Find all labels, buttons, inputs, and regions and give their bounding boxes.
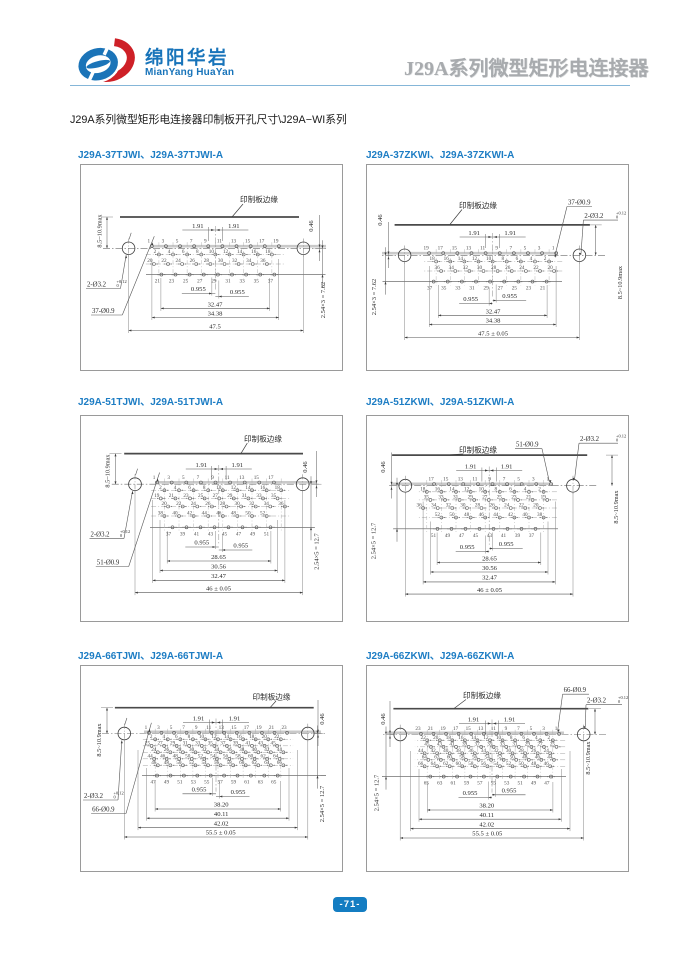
svg-text:24: 24 [151, 747, 157, 753]
svg-text:64: 64 [422, 754, 428, 760]
svg-text:2-Ø3.2: 2-Ø3.2 [584, 213, 604, 220]
svg-text:36: 36 [435, 265, 441, 271]
svg-text:32.47: 32.47 [482, 575, 498, 582]
svg-text:31: 31 [242, 493, 248, 499]
svg-text:27: 27 [482, 494, 488, 500]
svg-text:27: 27 [537, 741, 543, 747]
svg-text:49: 49 [250, 531, 256, 537]
svg-text:44: 44 [277, 747, 283, 753]
svg-text:57: 57 [218, 779, 224, 785]
svg-text:29: 29 [468, 494, 474, 500]
svg-text:35: 35 [441, 286, 447, 292]
svg-text:23: 23 [281, 725, 287, 731]
svg-text:5: 5 [170, 725, 173, 731]
svg-text:56: 56 [472, 754, 478, 760]
svg-text:32: 32 [446, 503, 452, 509]
svg-text:6: 6 [188, 485, 191, 491]
svg-text:5: 5 [176, 238, 179, 244]
svg-text:4: 4 [524, 486, 527, 492]
svg-text:21: 21 [526, 494, 532, 500]
svg-text:19: 19 [154, 493, 160, 499]
svg-text:42: 42 [431, 748, 437, 754]
svg-text:44: 44 [202, 511, 208, 517]
svg-text:37-Ø0.9: 37-Ø0.9 [92, 308, 115, 315]
svg-text:2.54×3 = 7.62: 2.54×3 = 7.62 [371, 279, 378, 316]
svg-text:66-Ø0.9: 66-Ø0.9 [564, 687, 587, 694]
svg-text:2-Ø3.2: 2-Ø3.2 [91, 531, 111, 538]
svg-text:印制板边缘: 印制板边缘 [459, 445, 497, 455]
svg-text:11: 11 [480, 245, 485, 251]
svg-text:24: 24 [176, 258, 182, 264]
svg-text:1.91: 1.91 [468, 230, 480, 237]
svg-text:16: 16 [435, 486, 441, 492]
svg-text:30: 30 [477, 265, 483, 271]
svg-text:28.65: 28.65 [482, 555, 498, 562]
svg-text:20: 20 [533, 503, 539, 509]
svg-text:52: 52 [189, 760, 195, 766]
svg-text:34: 34 [431, 503, 437, 509]
svg-text:53: 53 [504, 780, 510, 786]
svg-text:52: 52 [260, 511, 266, 517]
svg-text:24: 24 [504, 503, 510, 509]
svg-text:42: 42 [508, 512, 514, 518]
svg-text:52: 52 [506, 761, 512, 767]
svg-text:19: 19 [541, 494, 547, 500]
svg-text:8: 8 [495, 486, 498, 492]
svg-text:36: 36 [417, 503, 423, 509]
svg-text:43: 43 [258, 740, 264, 746]
svg-text:17: 17 [429, 476, 435, 482]
svg-text:45: 45 [222, 531, 228, 537]
svg-text:62: 62 [434, 754, 440, 760]
svg-text:18: 18 [275, 485, 281, 491]
svg-text:51-Ø0.9: 51-Ø0.9 [97, 560, 120, 567]
svg-text:21: 21 [269, 725, 275, 731]
svg-text:47: 47 [544, 780, 550, 786]
svg-text:0.46: 0.46 [319, 713, 326, 725]
svg-text:25: 25 [183, 279, 189, 285]
svg-text:28: 28 [176, 747, 182, 753]
svg-text:61: 61 [451, 780, 457, 786]
svg-text:26: 26 [490, 503, 496, 509]
svg-text:4: 4 [530, 256, 533, 262]
svg-text:20: 20 [162, 501, 168, 507]
svg-text:15: 15 [245, 238, 251, 244]
svg-text:58: 58 [459, 754, 465, 760]
svg-text:14: 14 [245, 485, 251, 491]
svg-text:2-Ø3.2: 2-Ø3.2 [580, 436, 600, 443]
svg-text:53: 53 [191, 779, 197, 785]
svg-text:43: 43 [208, 531, 214, 537]
svg-text:40: 40 [252, 747, 258, 753]
svg-text:37: 37 [220, 740, 226, 746]
svg-text:51: 51 [431, 533, 437, 539]
svg-text:5: 5 [517, 476, 520, 482]
svg-text:50: 50 [449, 512, 455, 518]
svg-text:17: 17 [438, 245, 444, 251]
svg-text:1.91: 1.91 [465, 463, 477, 470]
svg-text:1.91: 1.91 [228, 223, 240, 230]
svg-text:0.955: 0.955 [463, 790, 479, 797]
svg-text:22: 22 [176, 501, 182, 507]
svg-text:13: 13 [466, 245, 472, 251]
svg-text:34: 34 [449, 265, 455, 271]
svg-text:1: 1 [148, 238, 151, 244]
svg-text:29: 29 [170, 740, 176, 746]
svg-text:34: 34 [264, 501, 270, 507]
svg-text:28: 28 [491, 265, 497, 271]
svg-text:5: 5 [530, 726, 533, 732]
svg-text:3: 3 [157, 725, 160, 731]
svg-text:0.46: 0.46 [377, 214, 384, 226]
svg-text:0.955: 0.955 [463, 296, 479, 303]
svg-text:27: 27 [498, 286, 504, 292]
svg-text:18: 18 [446, 735, 452, 741]
svg-text:23: 23 [183, 493, 189, 499]
svg-text:46 ± 0.05: 46 ± 0.05 [477, 587, 503, 594]
svg-text:54: 54 [493, 761, 499, 767]
svg-text:14: 14 [224, 734, 230, 740]
svg-text:2.54×5 = 12.7: 2.54×5 = 12.7 [374, 774, 381, 811]
svg-text:24: 24 [191, 501, 197, 507]
svg-text:23: 23 [169, 279, 175, 285]
svg-text:2.54×3 = 7.62: 2.54×3 = 7.62 [320, 282, 327, 319]
svg-text:3: 3 [532, 476, 535, 482]
svg-text:28.65: 28.65 [211, 554, 227, 561]
svg-text:7: 7 [182, 725, 185, 731]
svg-text:7: 7 [503, 476, 506, 482]
svg-text:6: 6 [516, 256, 519, 262]
svg-text:19: 19 [440, 726, 446, 732]
svg-text:56: 56 [481, 761, 487, 767]
svg-text:59: 59 [231, 779, 237, 785]
svg-text:1: 1 [145, 725, 148, 731]
svg-text:35: 35 [208, 740, 214, 746]
svg-text:33: 33 [256, 493, 262, 499]
svg-text:9: 9 [488, 476, 491, 482]
svg-text:15: 15 [466, 726, 472, 732]
svg-text:31: 31 [469, 286, 475, 292]
svg-text:2.54×5 = 12.7: 2.54×5 = 12.7 [319, 785, 326, 822]
svg-text:15: 15 [231, 725, 237, 731]
svg-text:1.91: 1.91 [468, 716, 480, 723]
svg-text:48: 48 [522, 754, 528, 760]
svg-text:7: 7 [197, 475, 200, 481]
svg-text:56: 56 [223, 753, 229, 759]
svg-text:26: 26 [505, 265, 511, 271]
svg-text:10: 10 [199, 734, 205, 740]
svg-text:1: 1 [552, 245, 555, 251]
svg-text:54: 54 [201, 760, 207, 766]
svg-text:24: 24 [544, 748, 550, 754]
svg-text:55: 55 [204, 779, 210, 785]
svg-text:26: 26 [190, 258, 196, 264]
svg-text:66-Ø0.9: 66-Ø0.9 [92, 807, 115, 814]
svg-text:29: 29 [227, 493, 233, 499]
svg-text:21: 21 [169, 493, 175, 499]
svg-text:0.955: 0.955 [231, 789, 247, 796]
svg-text:36: 36 [468, 748, 474, 754]
svg-text:41: 41 [501, 533, 507, 539]
svg-text:16: 16 [458, 735, 464, 741]
svg-text:2: 2 [538, 486, 541, 492]
svg-text:印制板边缘: 印制板边缘 [253, 692, 291, 702]
svg-text:37: 37 [475, 741, 481, 747]
svg-text:35: 35 [424, 494, 430, 500]
svg-text:30.56: 30.56 [482, 565, 498, 572]
svg-text:34: 34 [481, 748, 487, 754]
svg-text:30.56: 30.56 [211, 563, 227, 570]
svg-text:52: 52 [198, 753, 204, 759]
svg-text:15: 15 [443, 476, 449, 482]
svg-text:40.11: 40.11 [214, 811, 229, 818]
svg-text:20: 20 [548, 265, 554, 271]
svg-text:18: 18 [430, 256, 436, 262]
svg-text:1.91: 1.91 [229, 715, 241, 722]
svg-text:65: 65 [424, 780, 430, 786]
svg-text:25: 25 [512, 286, 518, 292]
svg-text:35: 35 [271, 493, 277, 499]
svg-text:14: 14 [237, 249, 243, 255]
svg-text:2-Ø3.2: 2-Ø3.2 [587, 698, 607, 705]
svg-text:11: 11 [491, 726, 496, 732]
svg-text:58: 58 [468, 761, 474, 767]
svg-text:34.38: 34.38 [486, 318, 502, 325]
svg-text:0.955: 0.955 [499, 541, 515, 548]
svg-text:29: 29 [211, 279, 217, 285]
svg-text:45: 45 [271, 740, 277, 746]
svg-text:29: 29 [525, 741, 531, 747]
svg-text:36: 36 [278, 501, 284, 507]
svg-text:40: 40 [522, 512, 528, 518]
svg-text:12: 12 [472, 256, 478, 262]
svg-text:11: 11 [472, 476, 477, 482]
svg-text:0.955: 0.955 [194, 540, 210, 547]
svg-text:1.91: 1.91 [501, 463, 513, 470]
svg-text:15: 15 [452, 245, 458, 251]
svg-text:31: 31 [183, 740, 189, 746]
svg-text:28: 28 [475, 503, 481, 509]
svg-text:42.02: 42.02 [214, 820, 229, 827]
svg-text:14: 14 [449, 486, 455, 492]
svg-text:45: 45 [424, 741, 430, 747]
svg-text:28: 28 [518, 748, 524, 754]
svg-text:18: 18 [420, 486, 426, 492]
svg-text:55.5 ± 0.05: 55.5 ± 0.05 [206, 830, 237, 837]
svg-text:8.5~10.9max: 8.5~10.9max [96, 723, 103, 757]
svg-text:12: 12 [464, 486, 470, 492]
svg-text:46: 46 [216, 511, 222, 517]
svg-text:0.46: 0.46 [302, 461, 309, 473]
svg-text:39: 39 [462, 741, 468, 747]
svg-text:23: 23 [415, 726, 421, 732]
svg-text:30: 30 [460, 503, 466, 509]
svg-text:8: 8 [203, 485, 206, 491]
svg-text:62: 62 [252, 760, 258, 766]
svg-text:14: 14 [458, 256, 464, 262]
svg-text:33: 33 [195, 740, 201, 746]
svg-text:10: 10 [496, 735, 502, 741]
svg-text:0.955: 0.955 [233, 543, 249, 550]
svg-text:10: 10 [216, 485, 222, 491]
svg-text:19: 19 [273, 238, 279, 244]
svg-text:60: 60 [447, 754, 453, 760]
svg-text:23: 23 [526, 286, 532, 292]
svg-text:8.5~10.9max: 8.5~10.9max [613, 490, 620, 524]
svg-text:39: 39 [180, 531, 186, 537]
svg-text:44: 44 [148, 753, 154, 759]
svg-text:0.46: 0.46 [380, 713, 387, 725]
svg-text:0.46: 0.46 [308, 220, 315, 232]
svg-text:1.91: 1.91 [193, 715, 205, 722]
svg-text:8.5~10.9max: 8.5~10.9max [585, 741, 592, 775]
svg-text:2-Ø3.2: 2-Ø3.2 [87, 282, 107, 289]
svg-text:31: 31 [225, 279, 231, 285]
svg-text:印制板边缘: 印制板边缘 [459, 200, 497, 210]
svg-text:46: 46 [544, 761, 550, 767]
svg-text:2: 2 [150, 734, 153, 740]
svg-text:57: 57 [477, 780, 483, 786]
svg-text:1: 1 [153, 475, 156, 481]
svg-text:63: 63 [258, 779, 264, 785]
svg-text:48: 48 [531, 761, 537, 767]
svg-text:44: 44 [547, 754, 553, 760]
svg-text:27: 27 [157, 740, 163, 746]
svg-text:18: 18 [249, 734, 255, 740]
svg-text:10: 10 [479, 486, 485, 492]
svg-text:30: 30 [506, 748, 512, 754]
svg-text:41: 41 [194, 531, 200, 537]
svg-text:0.955: 0.955 [230, 289, 246, 296]
svg-text:5: 5 [182, 475, 185, 481]
svg-text:3: 3 [167, 475, 170, 481]
svg-text:1.91: 1.91 [192, 223, 204, 230]
svg-text:8: 8 [510, 735, 513, 741]
svg-text:22: 22 [421, 735, 427, 741]
svg-text:50: 50 [510, 754, 516, 760]
svg-text:34: 34 [246, 258, 252, 264]
svg-text:23: 23 [511, 494, 517, 500]
svg-text:5: 5 [524, 245, 527, 251]
svg-text:62: 62 [443, 761, 449, 767]
svg-text:11: 11 [206, 725, 211, 731]
svg-text:2: 2 [544, 256, 547, 262]
svg-text:32: 32 [232, 258, 238, 264]
svg-text:47: 47 [236, 531, 242, 537]
svg-text:12: 12 [211, 734, 217, 740]
svg-text:8.5~10.9max: 8.5~10.9max [617, 265, 624, 299]
svg-text:28: 28 [220, 501, 226, 507]
svg-text:7: 7 [190, 238, 193, 244]
svg-text:62: 62 [261, 753, 267, 759]
svg-text:9: 9 [204, 238, 207, 244]
svg-text:22: 22 [533, 265, 539, 271]
svg-text:3: 3 [542, 726, 545, 732]
svg-text:8: 8 [188, 734, 191, 740]
svg-text:47: 47 [459, 533, 465, 539]
svg-text:8.5~10.9max: 8.5~10.9max [105, 454, 112, 488]
svg-text:21: 21 [155, 279, 161, 285]
svg-text:50: 50 [518, 761, 524, 767]
svg-text:32: 32 [201, 747, 207, 753]
svg-text:14: 14 [471, 735, 477, 741]
svg-text:8.5~10.9max: 8.5~10.9max [97, 214, 104, 248]
svg-text:1.91: 1.91 [504, 716, 516, 723]
svg-text:印制板边缘: 印制板边缘 [463, 690, 501, 700]
svg-text:4: 4 [168, 249, 171, 255]
svg-text:9: 9 [211, 475, 214, 481]
svg-text:6: 6 [509, 486, 512, 492]
svg-text:54: 54 [485, 754, 491, 760]
svg-text:13: 13 [231, 238, 237, 244]
svg-text:21: 21 [540, 286, 546, 292]
svg-text:46: 46 [535, 754, 541, 760]
svg-text:33: 33 [438, 494, 444, 500]
svg-text:64: 64 [273, 753, 279, 759]
svg-text:12: 12 [231, 485, 237, 491]
svg-text:60: 60 [248, 753, 254, 759]
svg-text:52: 52 [435, 512, 441, 518]
svg-text:35: 35 [254, 279, 260, 285]
svg-text:2-Ø3.2: 2-Ø3.2 [84, 793, 104, 800]
svg-text:44: 44 [418, 748, 424, 754]
svg-text:20: 20 [147, 258, 153, 264]
svg-text:32.47: 32.47 [486, 308, 502, 315]
svg-text:2: 2 [154, 249, 157, 255]
svg-text:21: 21 [428, 726, 434, 732]
svg-text:37: 37 [529, 533, 535, 539]
svg-text:24: 24 [519, 265, 525, 271]
svg-text:66: 66 [277, 760, 283, 766]
svg-text:1: 1 [547, 476, 550, 482]
svg-text:22: 22 [274, 734, 280, 740]
svg-text:38: 38 [158, 511, 164, 517]
svg-text:6: 6 [175, 734, 178, 740]
svg-text:30: 30 [189, 747, 195, 753]
svg-text:38: 38 [239, 747, 245, 753]
svg-text:60: 60 [456, 761, 462, 767]
svg-text:16: 16 [251, 249, 257, 255]
svg-text:65: 65 [271, 779, 277, 785]
svg-text:48: 48 [231, 511, 237, 517]
svg-text:2.54×5 = 12.7: 2.54×5 = 12.7 [371, 522, 378, 559]
svg-text:51: 51 [264, 531, 270, 537]
svg-text:41: 41 [245, 740, 251, 746]
svg-text:39: 39 [515, 533, 521, 539]
svg-text:30: 30 [218, 258, 224, 264]
svg-text:0.46: 0.46 [380, 461, 387, 473]
svg-text:42: 42 [187, 511, 193, 517]
svg-text:46: 46 [160, 753, 166, 759]
svg-text:49: 49 [445, 533, 451, 539]
svg-text:42: 42 [264, 747, 270, 753]
svg-text:4: 4 [535, 735, 538, 741]
svg-text:9: 9 [195, 725, 198, 731]
svg-text:26: 26 [531, 748, 537, 754]
svg-text:46 ± 0.05: 46 ± 0.05 [206, 585, 232, 592]
svg-text:12: 12 [483, 735, 489, 741]
svg-text:印制板边缘: 印制板边缘 [240, 194, 278, 204]
svg-text:55: 55 [491, 780, 497, 786]
svg-text:11: 11 [217, 238, 222, 244]
svg-text:32.47: 32.47 [211, 573, 227, 580]
svg-text:28: 28 [204, 258, 210, 264]
svg-text:46: 46 [479, 512, 485, 518]
svg-text:13: 13 [458, 476, 464, 482]
svg-text:32: 32 [493, 748, 499, 754]
svg-text:10: 10 [209, 249, 215, 255]
svg-text:58: 58 [227, 760, 233, 766]
